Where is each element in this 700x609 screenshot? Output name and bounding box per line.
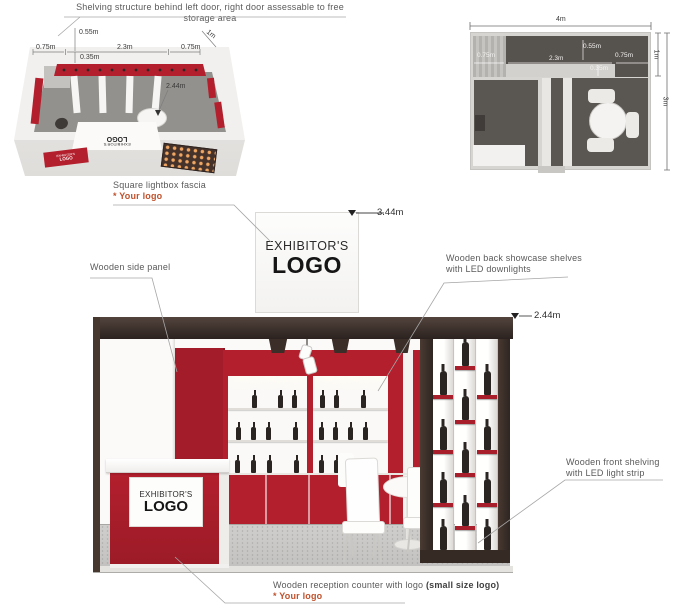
plan-shelf-wall (542, 78, 551, 166)
plan-shelf-wall (563, 78, 572, 166)
plan-dim-right: 0.75m (615, 52, 633, 59)
shelf (228, 408, 307, 410)
wine-bottle (348, 427, 353, 440)
plan-table (589, 102, 627, 140)
wine-bottle (319, 460, 324, 473)
plan-dim-center: 2.3m (549, 55, 563, 62)
wine-bottle (462, 449, 469, 473)
tower-left-post (420, 339, 433, 563)
wine-bottle (462, 502, 469, 526)
front-shelving-line1: Wooden front shelving (566, 457, 660, 468)
frame-left-edge (93, 317, 100, 572)
side-panel-red (175, 348, 225, 460)
wine-bottle (294, 460, 299, 473)
led-shelf (455, 473, 475, 477)
dim-shelf-depth: 0.55m (79, 29, 98, 36)
reception-annotation: Wooden reception counter with logo (smal… (273, 580, 499, 602)
tower-right-post (497, 339, 510, 563)
dim-right: 0.75m (181, 44, 200, 51)
wine-bottle (293, 427, 298, 440)
led-shelf (477, 450, 497, 454)
tower-base (420, 550, 510, 563)
led-shelf (477, 503, 497, 507)
counter-logo-sign: EXHIBITOR'S LOGO (129, 477, 203, 527)
wine-bottle (440, 526, 447, 550)
front-shelving-line2: with LED light strip (566, 468, 660, 479)
back-shelves-line2: with LED downlights (446, 264, 582, 275)
wine-bottle (319, 427, 324, 440)
plan-dim-lower-shelf: 0.35m (590, 65, 608, 72)
wine-bottle (484, 479, 491, 503)
lightbox-fascia: EXHIBITOR'S LOGO (255, 212, 359, 313)
wine-bottle (462, 396, 469, 420)
reception-line1: Wooden reception counter with logo (smal… (273, 580, 499, 591)
wine-bottle (251, 460, 256, 473)
reception-bold: (small size logo) (426, 580, 499, 590)
led-shelf (433, 395, 453, 399)
aerial-counter-logo: EXHIBITOR'S LOGO (88, 125, 146, 147)
aerial-bottles (58, 66, 204, 74)
dim-left: 0.75m (36, 44, 55, 51)
wine-bottle (252, 395, 257, 408)
plan-entry-tab (538, 166, 565, 173)
wine-bottle (440, 426, 447, 450)
plan-door (475, 115, 485, 131)
wine-bottle (440, 371, 447, 395)
led-shelf (455, 366, 475, 370)
plan-dim-storage: 1m (652, 50, 659, 60)
back-shelves-annotation: Wooden back showcase shelves with LED do… (446, 253, 582, 275)
wine-bottle (251, 427, 256, 440)
shelf (313, 408, 388, 410)
cabinet-top-edge (223, 473, 425, 475)
dim-center: 2.3m (117, 44, 133, 51)
plan-dim-shelf-depth: 0.55m (583, 43, 601, 50)
dim-storage: 1m (205, 29, 217, 41)
wine-bottle (484, 526, 491, 550)
plan-dim-depth: 3m (661, 97, 668, 107)
lightbox-exhibitor-name: EXHIBITOR'S (256, 239, 358, 253)
wine-bottle (361, 395, 366, 408)
reception-note: * Your logo (273, 591, 499, 602)
plan-aisle (551, 78, 563, 166)
plan-back-showcase (506, 36, 648, 66)
wine-bottle (484, 426, 491, 450)
led-shelf (455, 420, 475, 424)
wine-bottle (235, 460, 240, 473)
dim-total-height: 3.44m (377, 207, 403, 218)
counter-logo: LOGO (144, 499, 188, 514)
plan-chair (626, 112, 639, 138)
wine-bottle (267, 460, 272, 473)
frame-top-bar (95, 317, 513, 339)
chair-back (345, 457, 380, 526)
aerial-shelf-column (126, 76, 134, 113)
wine-bottle (440, 479, 447, 503)
dim-lower-shelf: 0.35m (80, 54, 99, 61)
lightbox-logo: LOGO (256, 253, 358, 277)
aerial-counter-name: EXHIBITOR'S (88, 142, 146, 147)
aerial-view: EXHIBITOR'S LOGO EXHIBITOR'S LOGO 0.55m … (10, 22, 255, 184)
counter-side (219, 472, 229, 564)
booth-elevation: EXHIBITOR'S LOGO (93, 317, 513, 575)
wine-bottle (320, 395, 325, 408)
front-shelving-annotation: Wooden front shelving with LED light str… (566, 457, 660, 479)
aerial-shelf-column (99, 76, 107, 113)
plan-dim-width: 4m (556, 16, 566, 23)
back-shelves-line1: Wooden back showcase shelves (446, 253, 582, 264)
chair-seat (342, 521, 385, 534)
design-sheet: Shelving structure behind left door, rig… (0, 0, 700, 609)
plan-right-cell (615, 64, 648, 77)
dim-booth-height: 2.44m (534, 310, 560, 321)
floor-plan: 0.75m 2.3m 0.55m 0.75m 0.35m (470, 32, 651, 170)
wine-bottle (484, 371, 491, 395)
aerial-counter-logotext: LOGO (88, 135, 146, 142)
wine-bottle (236, 427, 241, 440)
plan-dim-left: 0.75m (477, 52, 495, 59)
plan-chair (587, 138, 614, 152)
shelf (228, 440, 307, 442)
led-shelf (477, 395, 497, 399)
led-shelf (433, 450, 453, 454)
plan-counter (473, 145, 525, 166)
counter-base (110, 564, 229, 568)
counter-top (106, 459, 229, 473)
aerial-panel-logo: LOGO (59, 156, 73, 162)
side-panel-annotation: Wooden side panel (90, 262, 170, 273)
wine-bottle (266, 427, 271, 440)
lightbox-annotation-note: * Your logo (113, 191, 206, 202)
wine-bottle (462, 342, 469, 366)
led-shelf (455, 526, 475, 530)
led-shelf (433, 503, 453, 507)
dim-height: 2.44m (166, 83, 185, 90)
shelf (313, 440, 388, 442)
wine-bottle (278, 395, 283, 408)
wine-bottle (363, 427, 368, 440)
wine-bottle (334, 395, 339, 408)
cabinet-seam (265, 475, 267, 525)
top-annotation: Shelving structure behind left door, rig… (60, 2, 360, 24)
plan-chair (588, 89, 615, 103)
wine-bottle (333, 427, 338, 440)
wine-bottle (292, 395, 297, 408)
reception-text: Wooden reception counter with logo (273, 580, 426, 590)
cabinet-seam (308, 475, 310, 525)
